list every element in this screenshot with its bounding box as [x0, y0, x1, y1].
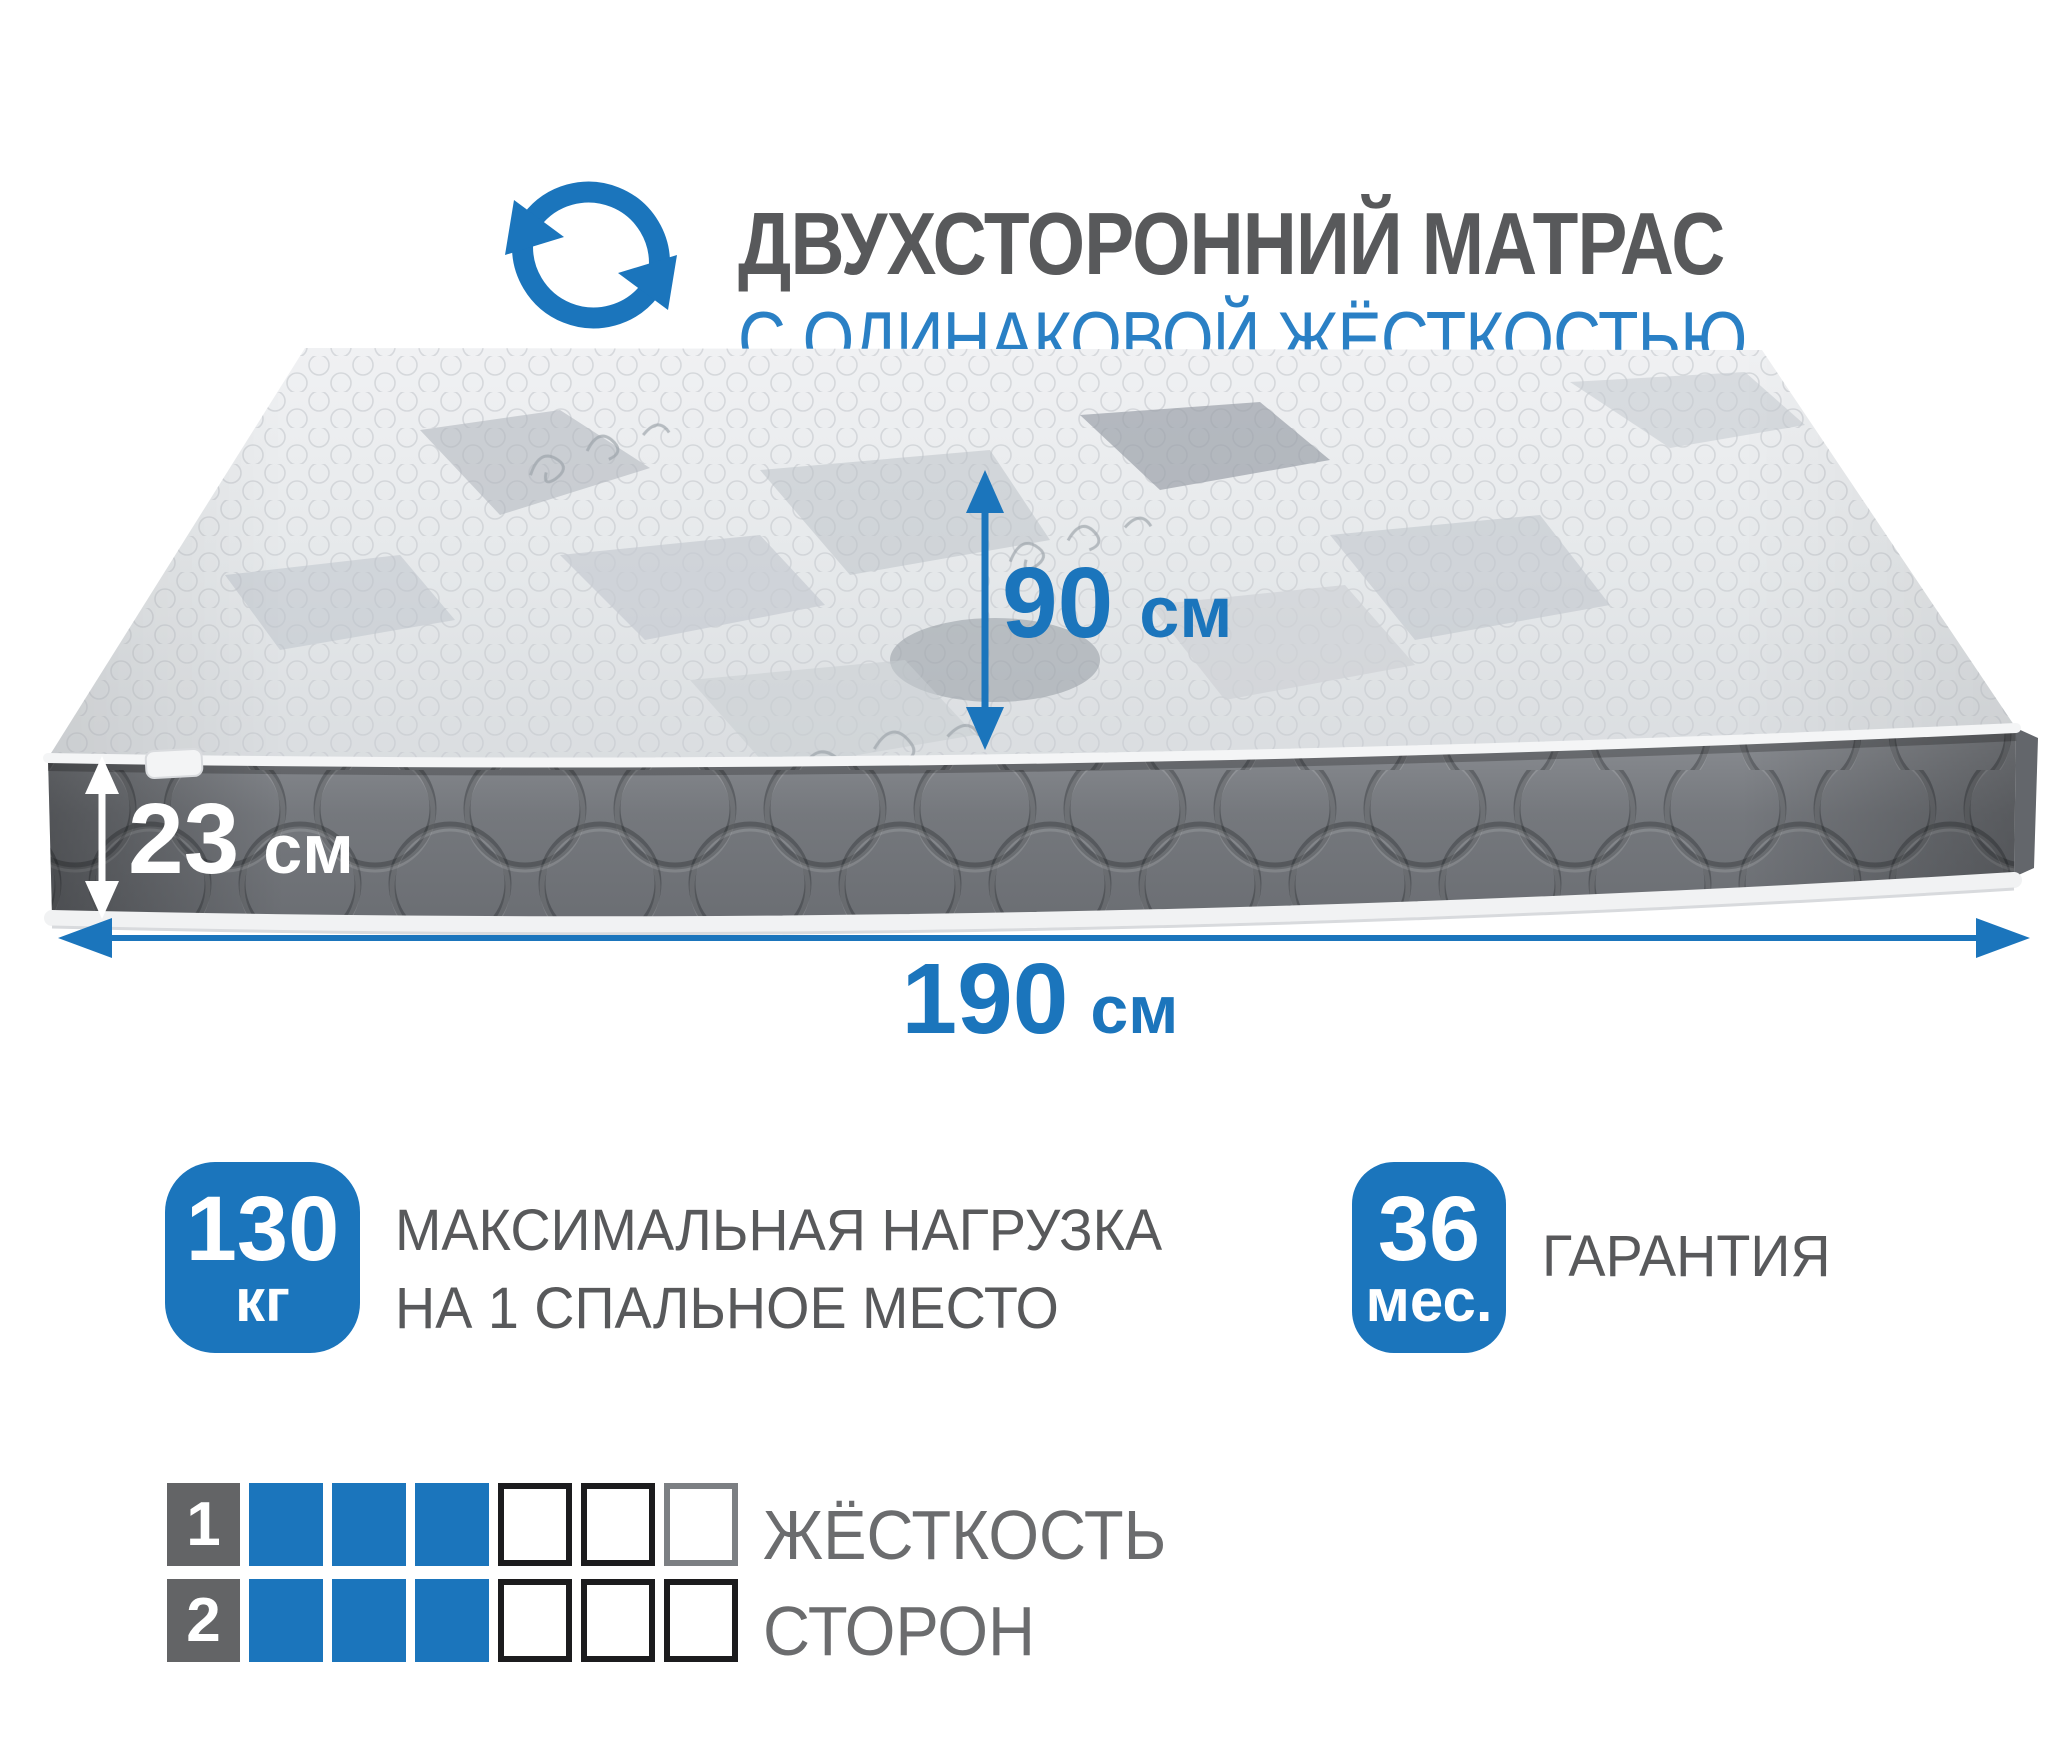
- length-dimension-label: 190см: [902, 943, 1179, 1055]
- max-load-label: МАКСИМАЛЬНАЯ НАГРУЗКА НА 1 СПАЛЬНОЕ МЕСТ…: [395, 1192, 1162, 1348]
- firmness-cell-filled: [332, 1579, 406, 1662]
- max-load-value: 130: [186, 1186, 340, 1272]
- mattress-right-edge: [2014, 728, 2038, 877]
- firmness-row: 2: [167, 1579, 738, 1662]
- warranty-unit: мес.: [1365, 1272, 1492, 1330]
- warranty-label: ГАРАНТИЯ: [1542, 1222, 1831, 1292]
- firmness-cell-filled: [415, 1579, 489, 1662]
- firmness-cell-empty: [498, 1579, 572, 1662]
- firmness-cell-filled: [332, 1483, 406, 1566]
- page-title: ДВУХСТОРОННИЙ МАТРАС: [738, 196, 1746, 292]
- warranty-badge: 36 мес.: [1352, 1162, 1506, 1353]
- firmness-row-number: 1: [167, 1483, 240, 1566]
- firmness-cell-empty: [664, 1483, 738, 1566]
- mattress-infographic: ДВУХСТОРОННИЙ МАТРАС С ОДИНАКОВОЙ ЖЁСТКО…: [0, 0, 2048, 1757]
- firmness-row: 1: [167, 1483, 738, 1566]
- firmness-cell-empty: [581, 1579, 655, 1662]
- mattress-tag: [145, 749, 202, 779]
- firmness-cell-filled: [249, 1483, 323, 1566]
- firmness-row-number: 2: [167, 1579, 240, 1662]
- firmness-cell-filled: [249, 1579, 323, 1662]
- firmness-cell-empty: [664, 1579, 738, 1662]
- firmness-rows: 12: [167, 1483, 738, 1662]
- firmness-cell-filled: [415, 1483, 489, 1566]
- max-load-unit: кг: [235, 1272, 290, 1330]
- firmness-cell-empty: [581, 1483, 655, 1566]
- firmness-label: ЖЁСТКОСТЬ СТОРОН: [763, 1487, 1166, 1679]
- firmness-cell-empty: [498, 1483, 572, 1566]
- max-load-badge: 130 кг: [165, 1162, 360, 1353]
- warranty-value: 36: [1378, 1186, 1480, 1272]
- mattress-illustration: 90см 23см 190см: [0, 320, 2048, 1080]
